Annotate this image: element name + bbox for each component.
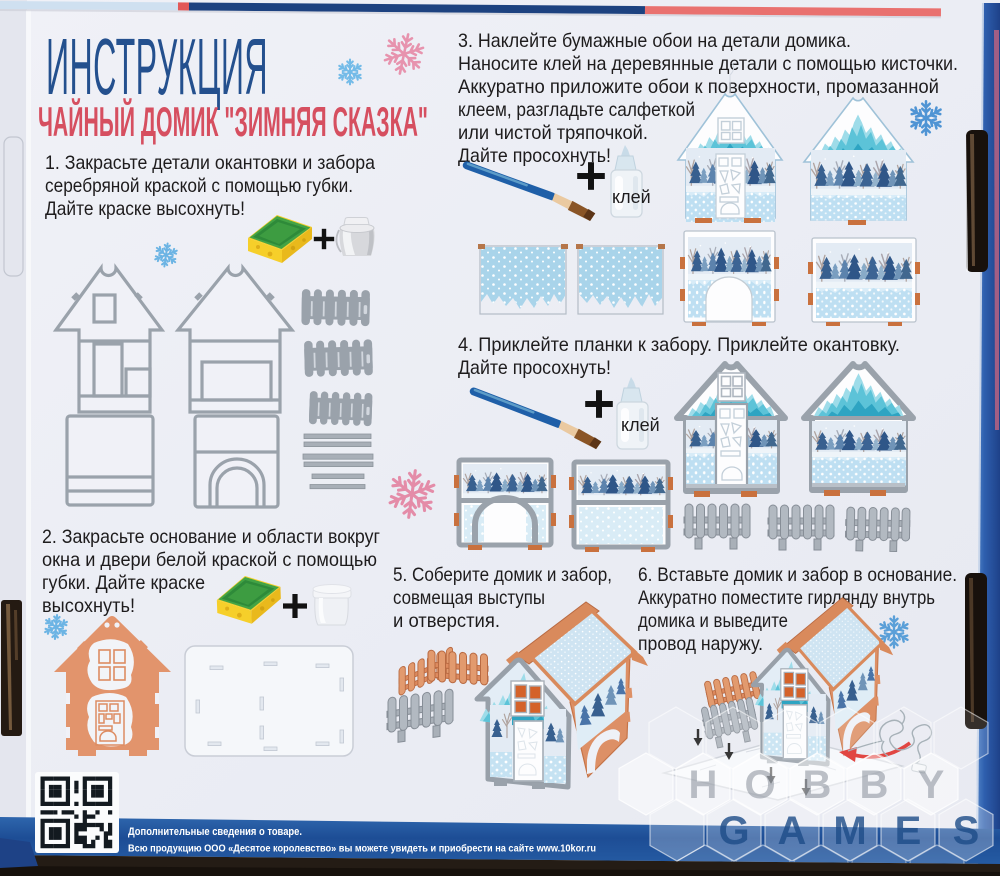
svg-text:B: B xyxy=(803,763,832,807)
svg-text:губки. Дайте краске: губки. Дайте краске xyxy=(42,572,205,594)
svg-text:O: O xyxy=(744,763,775,807)
svg-text:A: A xyxy=(778,809,807,853)
svg-text:совмещая выступы: совмещая выступы xyxy=(393,587,545,609)
svg-text:S: S xyxy=(953,809,980,853)
svg-text:3. Наклейте бумажные обои на: 3. Наклейте бумажные обои на детали доми… xyxy=(458,30,851,52)
svg-text:Всю продукцию ООО «Десятое кор: Всю продукцию ООО «Десятое королевство» … xyxy=(128,843,596,855)
svg-text:2. Закрасьте основание и облас: 2. Закрасьте основание и области вокруг xyxy=(42,526,380,548)
svg-text:1. Закрасьте детали окантовки: 1. Закрасьте детали окантовки и забора xyxy=(45,152,375,174)
svg-text:5. Соберите домик и забор,: 5. Соберите домик и забор, xyxy=(393,564,612,586)
svg-text:клей: клей xyxy=(621,415,660,435)
svg-text:Дайте краске высохнуть!: Дайте краске высохнуть! xyxy=(45,198,245,220)
svg-text:провод наружу.: провод наружу. xyxy=(638,633,763,655)
svg-text:6. Вставьте домик и забор в ос: 6. Вставьте домик и забор в основание. xyxy=(638,564,957,586)
svg-text:M: M xyxy=(833,809,866,853)
svg-text:Y: Y xyxy=(918,763,945,807)
svg-text:4. Приклейте планки к забору.: 4. Приклейте планки к забору. Приклейте … xyxy=(458,334,900,356)
svg-text:B: B xyxy=(860,763,889,807)
svg-text:окна и двери белой краской с п: окна и двери белой краской с помощью xyxy=(42,549,377,571)
svg-text:или чистой тряпочкой.: или чистой тряпочкой. xyxy=(458,122,648,144)
svg-text:G: G xyxy=(718,809,749,853)
svg-text:Дополнительные сведения о това: Дополнительные сведения о товаре. xyxy=(128,826,302,838)
svg-text:Дайте просохнуть!: Дайте просохнуть! xyxy=(458,357,611,379)
svg-text:E: E xyxy=(895,809,922,853)
svg-text:и отверстия.: и отверстия. xyxy=(393,610,500,632)
svg-text:H: H xyxy=(689,763,718,807)
svg-text:домика и выведите: домика и выведите xyxy=(638,610,788,632)
svg-text:клеем, разгладьте салфеткой: клеем, разгладьте салфеткой xyxy=(458,99,695,121)
svg-text:Аккуратно приложите обои к пов: Аккуратно приложите обои к поверхности, … xyxy=(458,76,939,98)
svg-text:Наносите клей на деревянные де: Наносите клей на деревянные детали с пом… xyxy=(458,53,958,75)
svg-text:Аккуратно поместите гирлянду в: Аккуратно поместите гирлянду внутрь xyxy=(638,587,935,609)
svg-text:клей: клей xyxy=(612,187,651,207)
svg-text:серебряной краской с помощью г: серебряной краской с помощью губки. xyxy=(45,175,353,197)
svg-text:ЧАЙНЫЙ ДОМИК "ЗИМНЯЯ СКАЗКА": ЧАЙНЫЙ ДОМИК "ЗИМНЯЯ СКАЗКА" xyxy=(38,97,428,145)
svg-text:высохнуть!: высохнуть! xyxy=(42,595,135,617)
